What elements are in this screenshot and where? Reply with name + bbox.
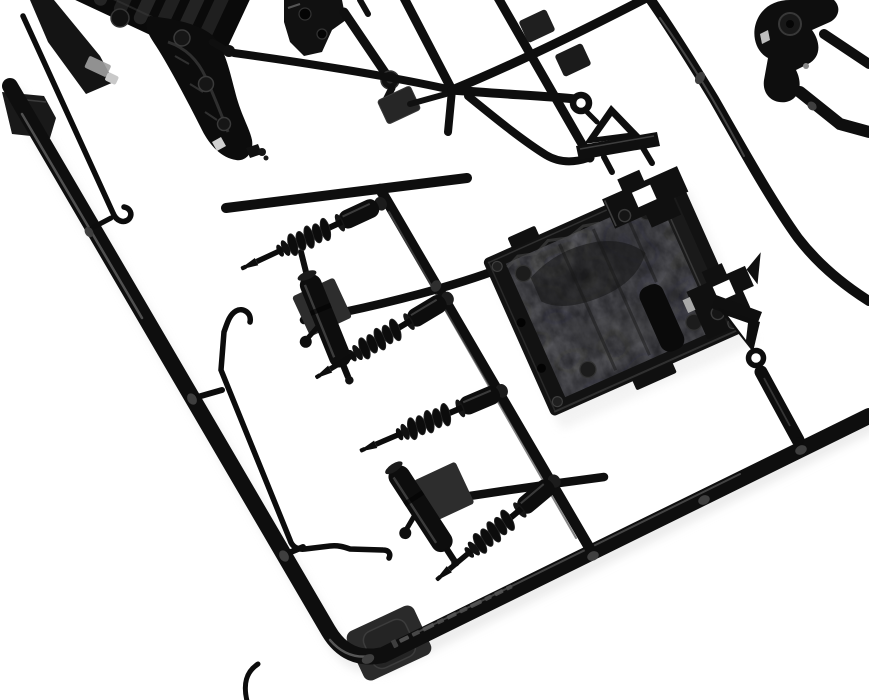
knuckle-boss-hole xyxy=(786,20,794,28)
gearbox-bolt-boss xyxy=(174,30,190,46)
gearbox-shaft-nub xyxy=(258,148,266,156)
eyelet-ring xyxy=(749,351,764,366)
arm-bracket-hole xyxy=(299,8,311,20)
runner-hub-stub xyxy=(448,90,452,132)
sprue-photo: Close-up photo of a black injection-mold… xyxy=(0,0,869,700)
gearbox-bolt-boss xyxy=(199,77,214,92)
photo-frame: Close-up photo of a black injection-mold… xyxy=(0,0,869,700)
gearbox-bolt-boss xyxy=(218,118,231,131)
knuckle-glint-dot xyxy=(803,63,809,69)
arm-bracket-hole xyxy=(317,29,327,39)
gearbox-shaft-tip xyxy=(264,156,269,161)
engine-bolt-boss xyxy=(111,9,129,27)
